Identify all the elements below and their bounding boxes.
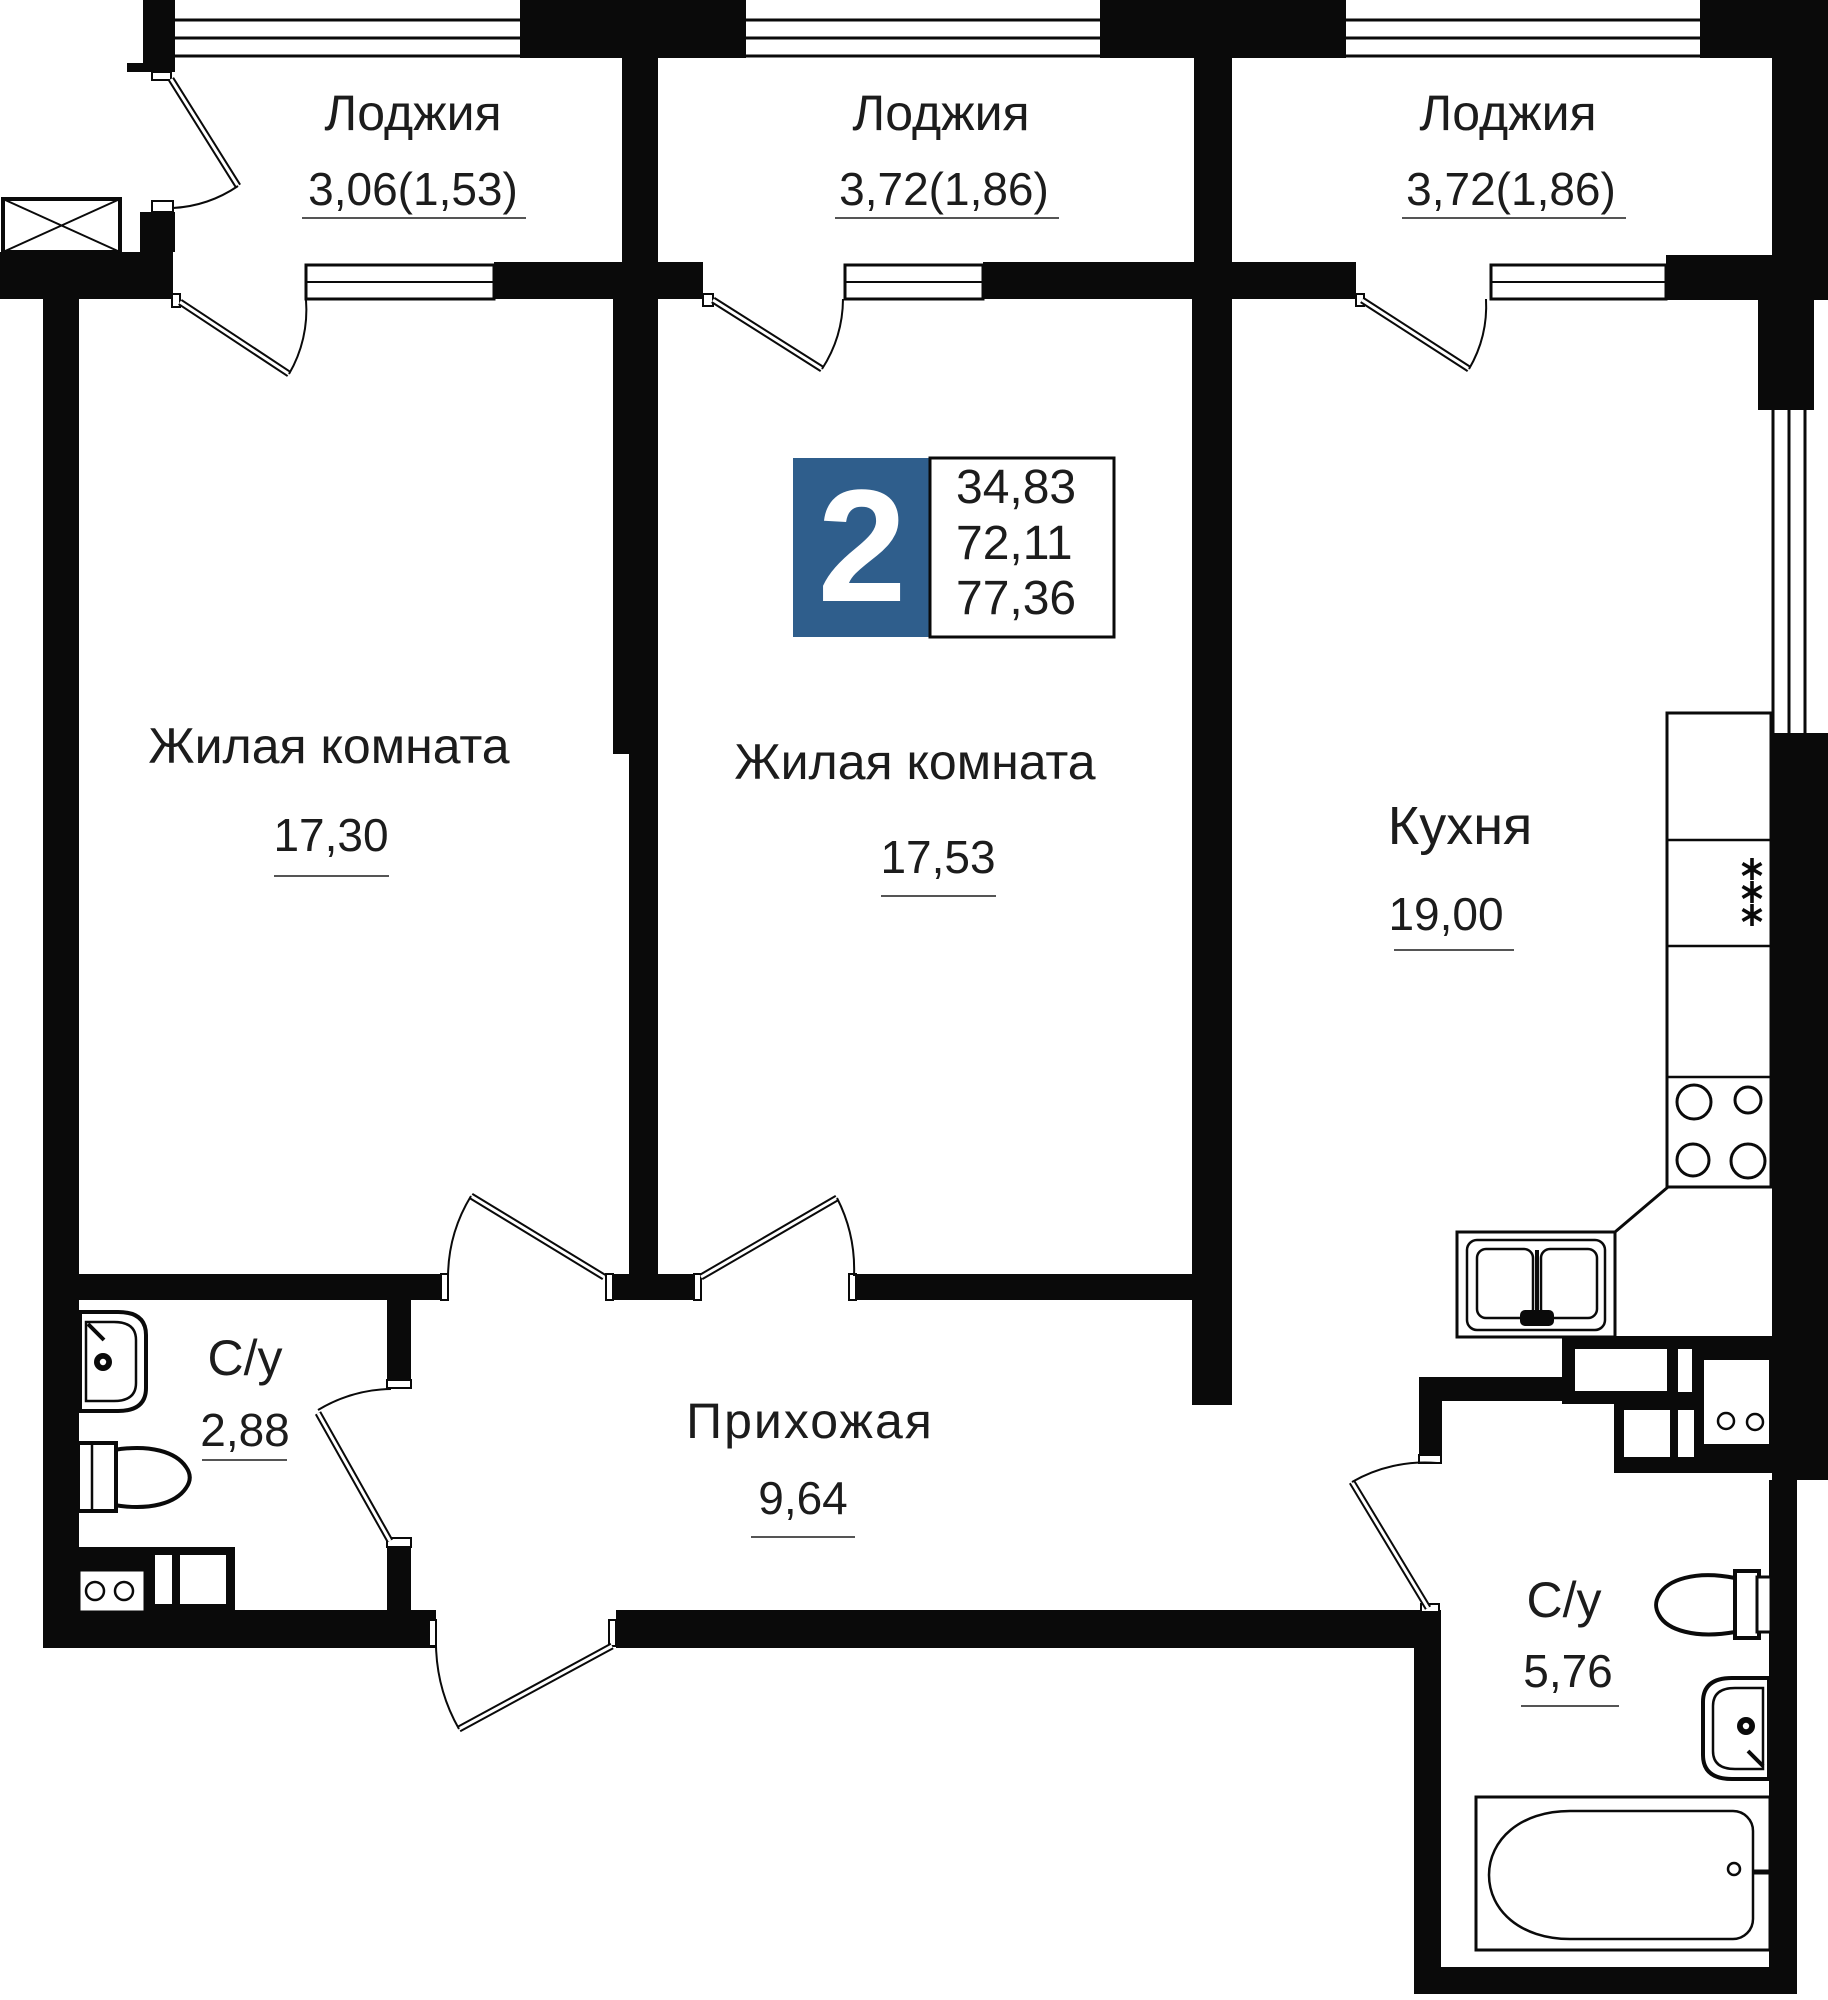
svg-text:77,36: 77,36 [956, 572, 1076, 625]
svg-text:Лоджия: Лоджия [1419, 85, 1596, 141]
svg-text:2: 2 [818, 456, 907, 635]
svg-text:Кухня: Кухня [1388, 796, 1533, 856]
svg-text:17,53: 17,53 [880, 831, 995, 883]
svg-text:9,64: 9,64 [758, 1472, 848, 1524]
svg-text:3,72(1,86): 3,72(1,86) [1406, 163, 1616, 215]
svg-text:3,72(1,86): 3,72(1,86) [839, 163, 1049, 215]
svg-text:2,88: 2,88 [200, 1404, 290, 1456]
svg-text:5,76: 5,76 [1523, 1645, 1613, 1697]
svg-text:Жилая комната: Жилая комната [734, 734, 1095, 790]
svg-text:19,00: 19,00 [1388, 888, 1503, 940]
svg-text:Жилая комната: Жилая комната [148, 718, 509, 774]
svg-text:17,30: 17,30 [273, 809, 388, 861]
svg-text:С/у: С/у [208, 1330, 283, 1386]
svg-text:Лоджия: Лоджия [852, 85, 1029, 141]
svg-text:Лоджия: Лоджия [324, 85, 501, 141]
svg-text:3,06(1,53): 3,06(1,53) [308, 163, 518, 215]
svg-text:С/у: С/у [1527, 1572, 1602, 1628]
svg-text:Прихожая: Прихожая [686, 1393, 934, 1449]
svg-text:72,11: 72,11 [956, 517, 1073, 570]
svg-text:34,83: 34,83 [956, 461, 1076, 514]
